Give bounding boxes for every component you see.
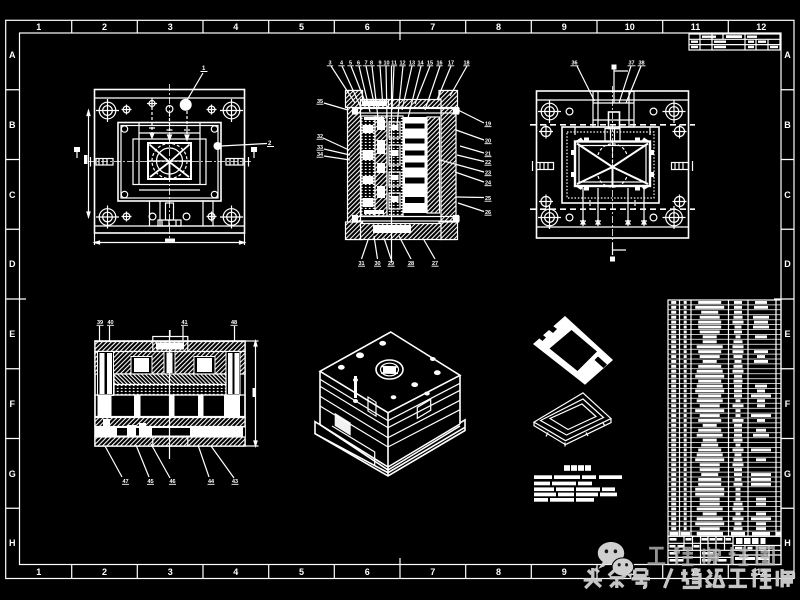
svg-text:1: 1 [36, 567, 41, 577]
svg-text:C: C [9, 190, 16, 200]
svg-text:8: 8 [496, 22, 501, 32]
svg-text:12: 12 [756, 22, 766, 32]
svg-text:1: 1 [36, 22, 41, 32]
svg-text:9: 9 [562, 22, 567, 32]
svg-text:B: B [784, 120, 791, 130]
svg-text:D: D [784, 259, 791, 269]
svg-text:10: 10 [625, 22, 635, 32]
svg-text:3: 3 [168, 567, 173, 577]
svg-text:9: 9 [562, 567, 567, 577]
svg-text:2: 2 [102, 567, 107, 577]
svg-text:3: 3 [168, 22, 173, 32]
svg-text:8: 8 [496, 567, 501, 577]
svg-text:2: 2 [102, 22, 107, 32]
svg-text:H: H [784, 538, 791, 548]
svg-text:E: E [784, 329, 790, 339]
svg-text:G: G [784, 469, 791, 479]
svg-text:11: 11 [691, 22, 701, 32]
svg-text:4: 4 [233, 567, 238, 577]
svg-text:4: 4 [233, 22, 238, 32]
svg-text:7: 7 [430, 567, 435, 577]
svg-text:E: E [9, 329, 15, 339]
svg-text:7: 7 [430, 22, 435, 32]
svg-text:A: A [9, 50, 16, 60]
svg-text:H: H [9, 538, 16, 548]
svg-text:G: G [9, 469, 16, 479]
svg-text:5: 5 [299, 567, 304, 577]
svg-text:6: 6 [365, 567, 370, 577]
svg-text:D: D [9, 259, 16, 269]
svg-text:6: 6 [365, 22, 370, 32]
svg-text:5: 5 [299, 22, 304, 32]
svg-text:A: A [784, 50, 791, 60]
svg-text:F: F [10, 399, 16, 409]
svg-text:B: B [9, 120, 16, 130]
svg-text:C: C [784, 190, 791, 200]
svg-text:F: F [785, 399, 791, 409]
